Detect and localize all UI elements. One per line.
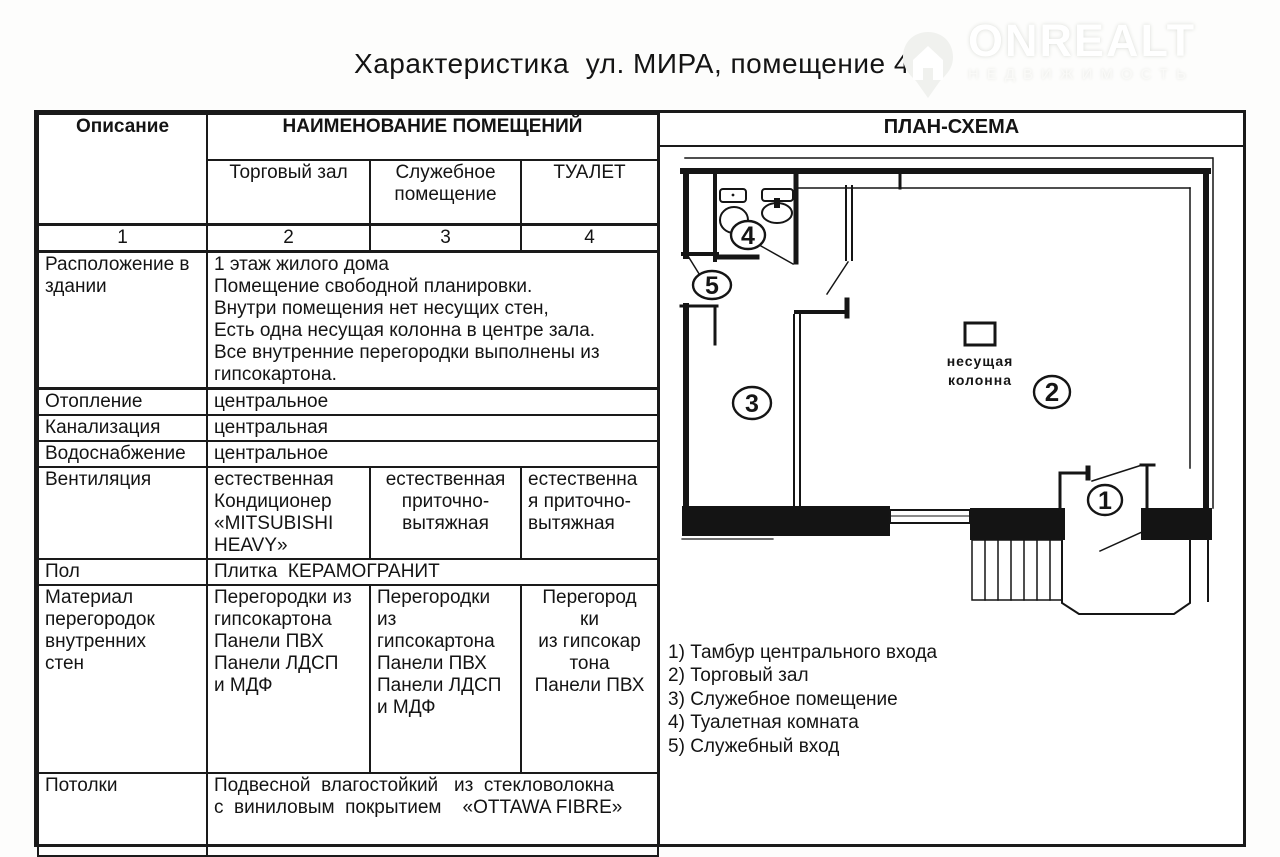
row-value-partitions-3: Перегород ки из гипсокар тона Панели ПВХ xyxy=(521,585,658,773)
svg-text:4: 4 xyxy=(741,222,755,250)
column-label-2: колонна xyxy=(948,372,1012,388)
wall-bottom-left xyxy=(682,506,890,536)
wall-bottom-right xyxy=(1141,508,1212,540)
legend-item: 2) Торговый зал xyxy=(668,664,937,687)
row-value-ventilation-2: естественная приточно- вытяжная xyxy=(370,467,521,559)
door-swing-2 xyxy=(1100,532,1142,551)
row-value-sewerage: центральная xyxy=(207,415,658,441)
plan-panel: ПЛАН-СХЕМА xyxy=(659,113,1243,844)
row-label-ceilings: Потолки xyxy=(38,773,207,856)
onrealt-watermark: ONREALT НЕДВИЖИМОСТЬ xyxy=(900,18,1250,106)
svg-text:5: 5 xyxy=(705,272,719,300)
row-label-sewerage: Канализация xyxy=(38,415,207,441)
col-header-trade-hall: Торговый зал xyxy=(207,160,370,224)
corridor-wall xyxy=(846,186,852,260)
col-header-toilet: ТУАЛЕТ xyxy=(521,160,658,224)
row-value-partitions-2: Перегородки из гипсокартона Панели ПВХ П… xyxy=(370,585,521,773)
brand-subtitle: НЕДВИЖИМОСТЬ xyxy=(968,66,1196,83)
row-label-heating: Отопление xyxy=(38,388,207,415)
spec-table: Описание НАИМЕНОВАНИЕ ПОМЕЩЕНИЙ Торговый… xyxy=(37,113,659,857)
floor-plan: несущая колонна 4 5 3 2 1 xyxy=(675,151,1245,633)
col-number: 4 xyxy=(521,224,658,251)
legend-item: 1) Тамбур центрального входа xyxy=(668,641,937,664)
tambour-left-jamb xyxy=(1060,473,1088,510)
corridor-door-swing xyxy=(827,262,848,294)
pin-house-icon xyxy=(900,30,956,102)
stairs xyxy=(972,540,1062,600)
marker-5: 5 xyxy=(693,271,731,300)
row-value-ventilation-3: естественна я приточно- вытяжная xyxy=(521,467,658,559)
row-label-partitions: Материал перегородок внутренних стен xyxy=(38,585,207,773)
plan-legend: 1) Тамбур центрального входа 2) Торговый… xyxy=(668,641,937,758)
svg-text:1: 1 xyxy=(1098,487,1112,515)
column-square xyxy=(965,323,995,345)
legend-item: 5) Служебный вход xyxy=(668,735,937,758)
marker-3: 3 xyxy=(733,387,771,419)
wall-joints xyxy=(795,175,900,188)
svg-text:2: 2 xyxy=(1045,377,1059,407)
door-swing-1 xyxy=(1092,466,1139,481)
col-header-service-room: Служебное помещение xyxy=(370,160,521,224)
col-number: 1 xyxy=(38,224,207,251)
marker-1: 1 xyxy=(1088,485,1122,515)
col-header-description: Описание xyxy=(38,114,207,224)
sink-icon xyxy=(762,189,793,223)
row-value-location: 1 этаж жилого дома Помещение свободной п… xyxy=(207,251,658,388)
row-value-water: центральное xyxy=(207,441,658,467)
row-value-ventilation-1: естественная Кондиционер «MITSUBISHI HEA… xyxy=(207,467,370,559)
legend-item: 4) Туалетная комната xyxy=(668,711,937,734)
row-value-ceilings: Подвесной влагостойкий из стекловолокна … xyxy=(207,773,658,856)
marker-2: 2 xyxy=(1034,376,1070,408)
col-number: 3 xyxy=(370,224,521,251)
group-header-rooms: НАИМЕНОВАНИЕ ПОМЕЩЕНИЙ xyxy=(207,114,658,160)
legend-item: 3) Служебное помещение xyxy=(668,688,937,711)
brand-text: ONREALT xyxy=(968,18,1196,64)
porch-outline xyxy=(1062,540,1190,614)
plan-header: ПЛАН-СХЕМА xyxy=(660,113,1243,147)
row-value-partitions-1: Перегородки из гипсокартона Панели ПВХ П… xyxy=(207,585,370,773)
row-value-heating: центральное xyxy=(207,388,658,415)
tambour-right-jamb xyxy=(1141,465,1154,508)
row-label-water: Водоснабжение xyxy=(38,441,207,467)
row-value-floor: Плитка КЕРАМОГРАНИТ xyxy=(207,559,658,585)
row-label-location: Расположение в здании xyxy=(38,251,207,388)
wall-bottom-mid xyxy=(970,508,1065,540)
col-number: 2 xyxy=(207,224,370,251)
row-label-floor: Пол xyxy=(38,559,207,585)
marker4-leader xyxy=(761,246,793,264)
document-frame: Описание НАИМЕНОВАНИЕ ПОМЕЩЕНИЙ Торговый… xyxy=(34,110,1246,847)
column-label-1: несущая xyxy=(947,353,1014,369)
row-label-ventilation: Вентиляция xyxy=(38,467,207,559)
svg-text:3: 3 xyxy=(745,390,759,418)
marker-4: 4 xyxy=(731,221,765,250)
partition-room3 xyxy=(794,315,800,506)
